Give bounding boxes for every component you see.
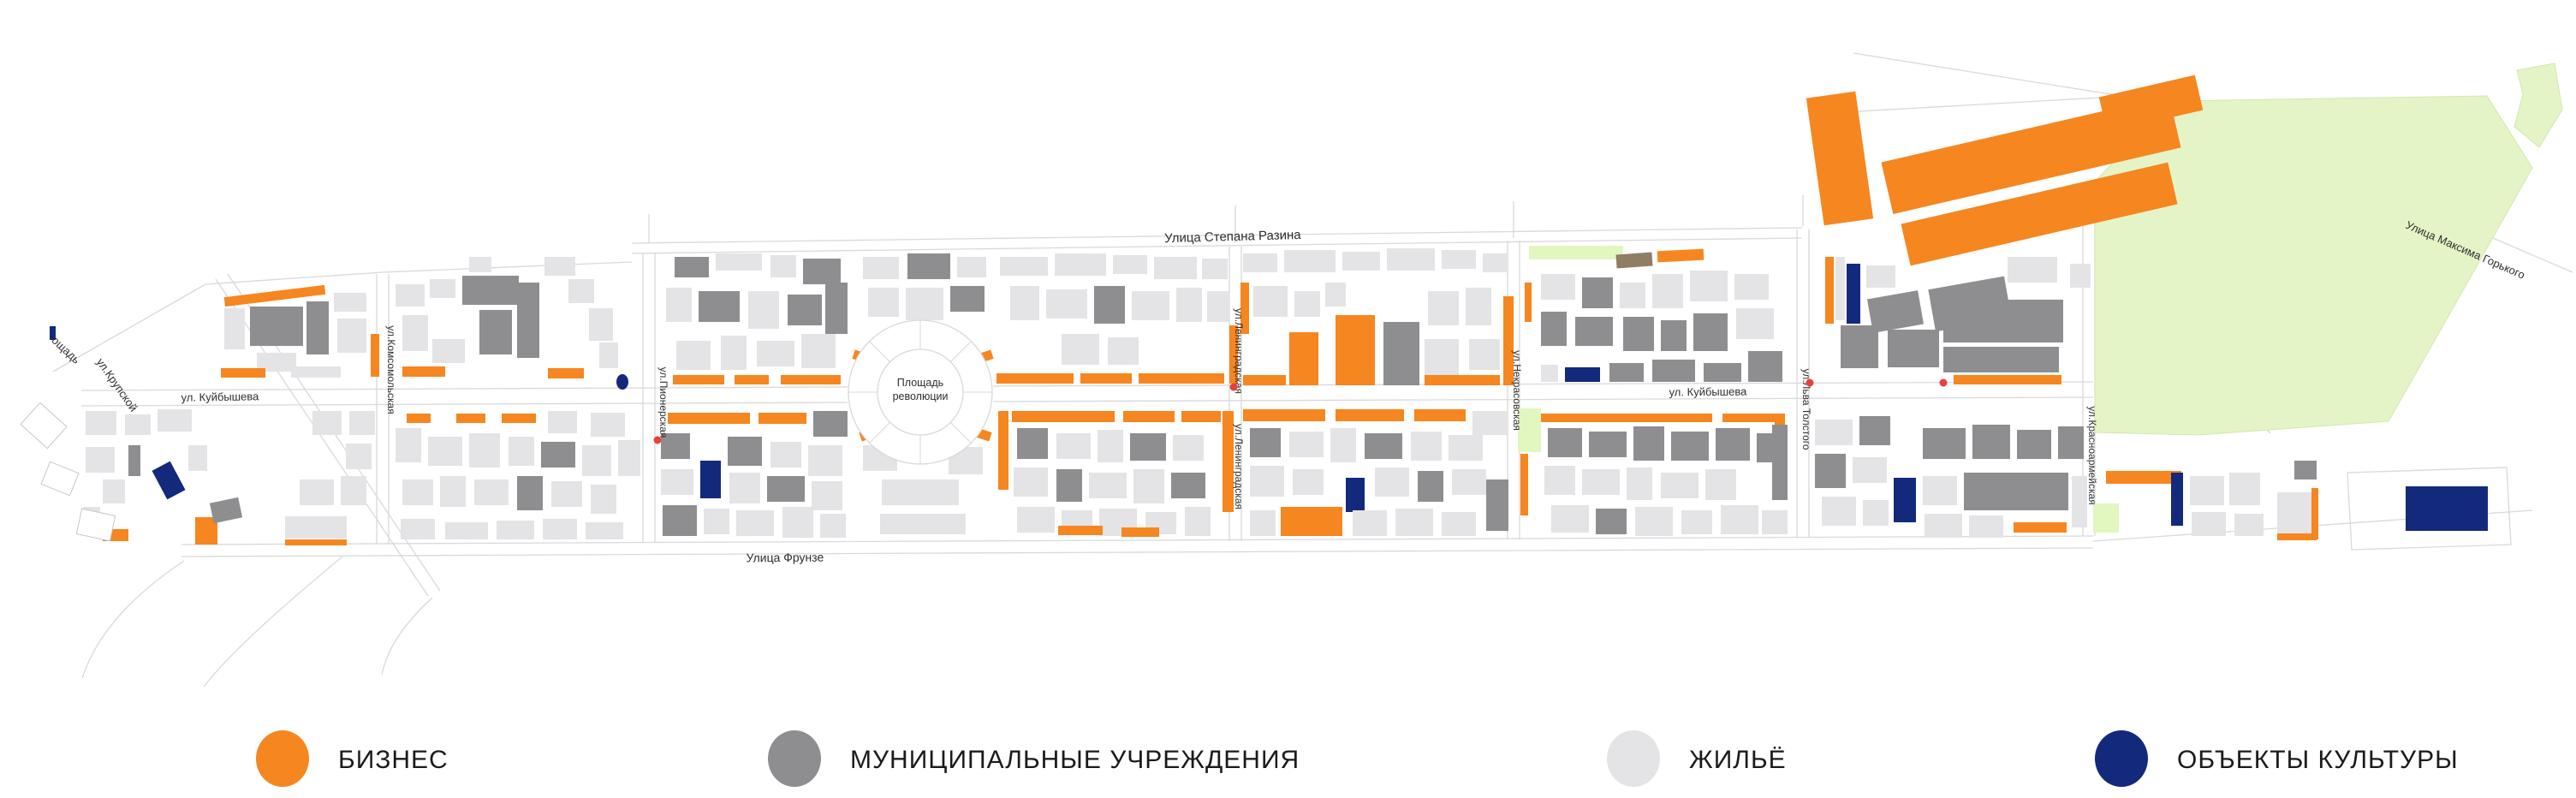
culture-ellipse [616,374,628,390]
building-business [1123,411,1175,422]
building-housing [1293,469,1324,495]
building-housing [1132,291,1169,320]
building-housing [1046,289,1087,319]
building-municipal [728,437,762,466]
building-municipal [1964,473,2068,510]
building-housing [1736,308,1774,339]
building-business [998,411,1008,490]
building-housing [1062,334,1099,365]
culture-dot-icon [2095,730,2148,787]
building-municipal [2017,430,2051,459]
building-housing [544,257,575,276]
building-municipal [1056,469,1082,502]
building-housing [591,413,625,437]
building-municipal [1250,428,1281,457]
building-housing [497,521,534,539]
map-page: Площадьреволюции Улица Степана Разинаул.… [0,0,2576,798]
building-housing [1185,507,1211,536]
building-culture [152,462,185,500]
building-municipal [1094,286,1125,324]
building-housing [782,507,813,538]
business-dot-icon [256,730,309,787]
road-path [82,561,184,678]
building-business [371,334,379,377]
building-housing [1000,257,1048,276]
building-housing [1661,473,1698,498]
building-municipal [1582,277,1613,308]
building-business [1223,411,1234,512]
building-housing [337,319,366,353]
building-housing [808,445,842,476]
building-municipal [479,310,512,354]
street-label: ул. Куйбышева [181,390,259,404]
building-housing [1133,469,1164,503]
legend-item-business: БИЗНЕС [256,730,449,787]
building-housing [661,469,693,495]
building-housing [158,409,192,432]
building-municipal [1693,313,1728,351]
building-housing [1635,507,1673,536]
building-business [735,375,769,384]
building-outline [21,402,67,448]
building-housing [1010,286,1039,320]
building-municipal [1772,425,1788,500]
building-housing [1284,250,1336,272]
city-map: Площадьреволюции Улица Степана Разинаул.… [0,0,2576,798]
building-municipal [1859,416,1890,445]
building-housing [1250,466,1284,497]
building-housing [1253,286,1288,317]
building-municipal [1623,317,1654,351]
building-business [1722,414,1781,422]
building-business [285,539,347,545]
building-municipal [1923,428,1966,459]
building-municipal [1972,425,2010,459]
building-housing [1289,432,1324,457]
building-housing [2229,473,2260,505]
building-business [1954,375,2061,384]
building-municipal [1661,320,1687,351]
building-housing [820,514,846,538]
building-municipal [1418,471,1443,502]
road-line [81,387,848,390]
building-municipal [306,301,329,354]
building-municipal [517,476,543,510]
building-housing [402,479,433,505]
building-housing [86,411,116,435]
building-municipal [1716,428,1750,461]
building-housing [770,255,796,277]
building-housing [1734,274,1769,300]
building-housing [2190,476,2224,505]
building-municipal [1589,432,1627,457]
building-housing [1243,253,1277,272]
building-business [996,373,1074,384]
building-culture [1847,264,1860,324]
building-municipal [1671,432,1709,461]
building-business [1825,257,1834,324]
building-housing [801,334,836,368]
plaza-layer: Площадьреволюции [848,320,992,464]
building-housing [2192,512,2226,536]
building-housing [589,308,613,341]
building-housing [1866,265,1895,288]
building-housing [2234,514,2264,536]
building-municipal [1017,428,1048,459]
building-business [781,375,841,384]
building-housing [1627,467,1652,500]
building-business [673,375,724,384]
building-housing [582,445,611,476]
building-housing [509,437,534,466]
building-housing [1375,467,1409,497]
building-housing [1620,283,1645,308]
building-municipal [1815,454,1846,488]
park-area [2514,63,2562,147]
street-label: ул.Пионерская [657,367,669,438]
building-business [1243,375,1286,385]
building-housing [1056,433,1091,459]
building-business [1281,507,1342,536]
building-municipal [675,257,709,277]
building-municipal [1171,473,1205,498]
building-municipal [1486,479,1508,531]
building-housing [1483,253,1507,272]
building-culture [1894,478,1916,522]
street-label: ул.Ленинградская [1233,308,1245,394]
building-municipal [788,295,822,325]
building-housing [1721,505,1758,534]
building-business [1336,315,1375,385]
building-municipal [1943,300,2063,342]
building-municipal [1365,433,1402,459]
building-housing [1176,288,1202,322]
building-housing [1098,430,1123,462]
building-business [2277,533,2317,540]
legend-label-municipal: МУНИЦИПАЛЬНЫЕ УЧРЕЖДЕНИЯ [850,746,1300,774]
building-business [1181,411,1221,422]
legend-item-municipal: МУНИЦИПАЛЬНЫЕ УЧРЕЖДЕНИЯ [768,730,1300,787]
building-municipal [1541,312,1567,346]
building-municipal [1596,509,1627,534]
building-housing [1207,291,1229,322]
building-housing [586,522,623,539]
building-housing [469,257,491,272]
plaza-label: революции [893,390,949,402]
building-municipal [825,283,848,334]
building-housing [428,437,462,466]
building-housing [729,473,760,503]
building-housing [1863,500,1889,526]
building-housing [1428,291,1459,325]
building-housing [445,522,488,539]
building-business [668,413,750,424]
building-municipal [210,497,242,524]
building-housing [1835,257,1845,320]
building-municipal [803,259,841,284]
building-housing [770,442,801,467]
building-housing [882,479,959,505]
building-housing [1411,432,1442,461]
building-housing [224,308,245,349]
green-area [2093,503,2119,533]
building-business [2106,471,2181,484]
building-housing [2008,257,2057,283]
building-housing [868,288,899,317]
building-housing [1325,283,1346,307]
building-business [402,366,445,377]
building-municipal [813,411,848,437]
building-housing [1472,411,1507,435]
road-line [205,272,383,284]
building-housing [103,479,125,503]
legend-item-housing: ЖИЛЬЁ [1607,730,1787,787]
street-label: ул. Куйбышева [1669,385,1747,399]
street-label: Улица Степана Разина [1164,228,1302,246]
building-business [1058,526,1103,535]
street-label: Улица Фрунзе [747,551,824,565]
building-housing [716,253,762,271]
street-label: ул.Некрасовская [1511,350,1523,431]
building-business [2014,522,2067,533]
building-housing [402,315,428,351]
building-housing [1544,466,1575,495]
road-line [993,397,2093,402]
building-housing [1690,271,1728,301]
building-municipal [2058,426,2084,459]
building-business [1289,332,1318,385]
building-housing [430,279,455,298]
building-municipal [663,505,697,536]
building-housing [906,288,943,320]
building-housing [599,342,618,368]
building-housing [2277,492,2313,533]
building-housing [568,279,594,303]
building-housing [1815,420,1853,445]
building-housing [1387,248,1435,271]
building-municipal [1748,351,1782,382]
building-housing [1969,515,2003,538]
building-housing [618,440,640,476]
building-housing [1681,510,1712,534]
building-housing [1294,291,1320,317]
building-housing [1762,510,1788,534]
building-housing [312,411,342,435]
building-housing [1173,435,1204,461]
building-housing [285,516,347,539]
building-housing [1925,514,1962,538]
building-business [1012,411,1115,422]
building-business [1139,373,1224,384]
red-dot [1806,379,1814,387]
building-other [1615,253,1652,269]
building-housing [1353,510,1387,536]
building-municipal [907,253,950,279]
building-housing [1452,469,1486,495]
building-housing [1442,512,1476,536]
plaza-label: Площадь [897,377,943,389]
building-housing [1541,274,1575,300]
building-housing [1442,250,1476,269]
building-housing [1551,505,1589,533]
legend: БИЗНЕС МУНИЦИПАЛЬНЫЕ УЧРЕЖДЕНИЯ ЖИЛЬЁ ОБ… [256,730,2459,787]
building-housing [1853,457,1887,483]
red-dot [654,437,662,444]
street-label: ул.Комсомольская [385,325,397,414]
building-housing [736,510,774,536]
building-business [502,414,536,423]
building-housing [1395,509,1433,536]
road-path [204,557,342,687]
building-housing [548,411,577,433]
legend-label-housing: ЖИЛЬЁ [1689,746,1787,774]
building-housing [1541,365,1558,382]
building-business [1525,283,1532,322]
street-label: ул.Красноармейская [2086,406,2098,504]
building-municipal [128,445,140,476]
building-business [1080,373,1132,384]
building-housing [1017,507,1055,533]
building-housing [300,479,334,505]
building-culture [1565,367,1600,382]
building-housing [1014,467,1048,497]
building-housing [1202,259,1228,279]
building-culture [2171,473,2183,526]
building-municipal [1633,426,1664,461]
building-housing [474,479,509,505]
building-housing [469,433,500,467]
building-municipal [517,283,539,358]
housing-dot-icon [1607,730,1660,787]
building-housing [1055,253,1106,276]
building-municipal [1609,363,1644,382]
building-business [2311,488,2318,539]
building-municipal [1652,360,1695,382]
building-business [1121,527,1159,537]
building-housing [957,257,986,277]
building-housing [812,481,842,510]
building-housing [349,411,375,435]
municipal-dot-icon [768,730,821,787]
building-housing [1705,469,1736,500]
building-housing [1449,435,1483,461]
building-housing [1330,428,1356,462]
building-housing [125,414,151,435]
building-housing [676,341,711,370]
building-housing [432,339,465,363]
building-business [407,414,431,423]
building-municipal [950,286,985,312]
building-municipal [541,442,575,467]
building-business [1657,249,1704,263]
building-municipal [767,476,805,502]
building-housing [1089,473,1127,498]
building-housing [551,481,582,507]
building-housing [757,341,794,366]
building-culture [1346,478,1365,512]
building-municipal [462,276,519,305]
building-culture [2406,486,2488,531]
building-housing [188,445,207,471]
building-housing [721,336,747,370]
building-housing [334,293,366,312]
building-housing [880,514,966,534]
legend-label-culture: ОБЪЕКТЫ КУЛЬТУРЫ [2177,746,2459,774]
building-housing [1108,337,1139,365]
building-housing [2072,476,2087,527]
building-municipal [699,291,740,322]
building-municipal [1575,317,1613,346]
building-housing [440,476,466,507]
building-business [1336,409,1404,421]
building-business [1243,409,1325,421]
road-line [181,548,2093,557]
building-housing [704,509,729,534]
building-housing [2070,264,2091,288]
building-outline [76,509,115,541]
building-housing [396,428,421,462]
building-outline [41,462,79,495]
building-housing [591,485,616,514]
building-municipal [250,307,303,346]
building-housing [748,291,779,329]
building-housing [1466,288,1491,325]
building-housing [1469,339,1500,370]
building-municipal [1888,330,1939,367]
building-culture [700,461,721,498]
road-path [382,598,432,675]
street-label: ул.Ленинградская [1233,424,1245,509]
building-housing [863,257,899,279]
building-housing [1652,274,1683,308]
building-business [1425,375,1500,385]
building-housing [1582,469,1620,495]
building-municipal [1548,428,1582,457]
street-label: ощадь [50,334,83,366]
building-municipal [2294,461,2317,479]
building-business [1414,409,1466,421]
building-municipal [1841,325,1878,368]
green-area [1529,246,1623,259]
building-business [221,368,265,378]
building-municipal [1130,433,1166,461]
building-business [1541,414,1712,422]
building-housing [1342,252,1380,271]
red-dot [1230,384,1238,391]
building-housing [1250,510,1276,536]
red-dot [1940,379,1948,387]
building-municipal [1704,363,1741,382]
building-housing [341,476,366,505]
building-municipal [1383,322,1419,385]
building-business [548,368,584,378]
building-housing [401,519,435,539]
legend-label-business: БИЗНЕС [338,746,449,774]
building-housing [291,366,341,378]
building-housing [1113,255,1147,274]
road-line [383,262,632,272]
building-housing [543,519,577,539]
building-business [456,414,485,423]
building-business [759,413,806,424]
building-housing [1822,497,1856,526]
building-housing [666,288,692,322]
building-housing [1154,257,1197,279]
building-business [1520,454,1528,515]
legend-item-culture: ОБЪЕКТЫ КУЛЬТУРЫ [2095,730,2459,787]
building-housing [346,444,372,469]
building-municipal [1943,347,2059,372]
